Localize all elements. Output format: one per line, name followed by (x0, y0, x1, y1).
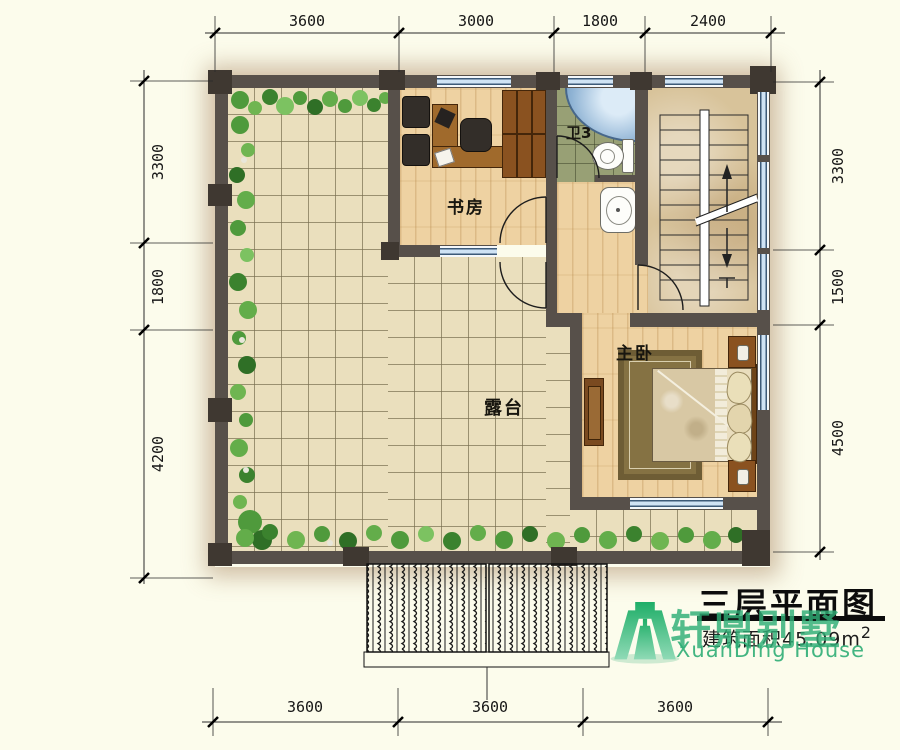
dim-right-2: 1500 (829, 269, 847, 305)
dim-right-3: 4500 (829, 420, 847, 456)
dim-top-2: 3000 (458, 12, 494, 30)
dim-top-1: 3600 (289, 12, 325, 30)
dim-right-1: 3300 (829, 148, 847, 184)
dim-bottom-1: 3600 (287, 698, 323, 716)
dim-bottom-2: 3600 (472, 698, 508, 716)
watermark-brand-en: XuanDing House (676, 638, 865, 662)
staircase (660, 110, 757, 306)
room-label-study: 书房 (447, 193, 485, 218)
roof-tile-panels (364, 564, 609, 700)
dim-bottom-3: 3600 (657, 698, 693, 716)
dim-left-2: 1800 (149, 269, 167, 305)
floor-plan-canvas: 书房 卫3 露台 主卧 3600 3000 1800 2400 3600 360… (0, 0, 900, 750)
dim-left-3: 4200 (149, 436, 167, 472)
dim-top-4: 2400 (690, 12, 726, 30)
room-label-master-bedroom: 主卧 (616, 339, 654, 364)
dim-top-3: 1800 (582, 12, 618, 30)
dim-left-1: 3300 (149, 144, 167, 180)
door-arcs (500, 136, 683, 310)
room-label-bathroom: 卫3 (566, 122, 591, 143)
room-label-terrace: 露台 (484, 394, 524, 420)
